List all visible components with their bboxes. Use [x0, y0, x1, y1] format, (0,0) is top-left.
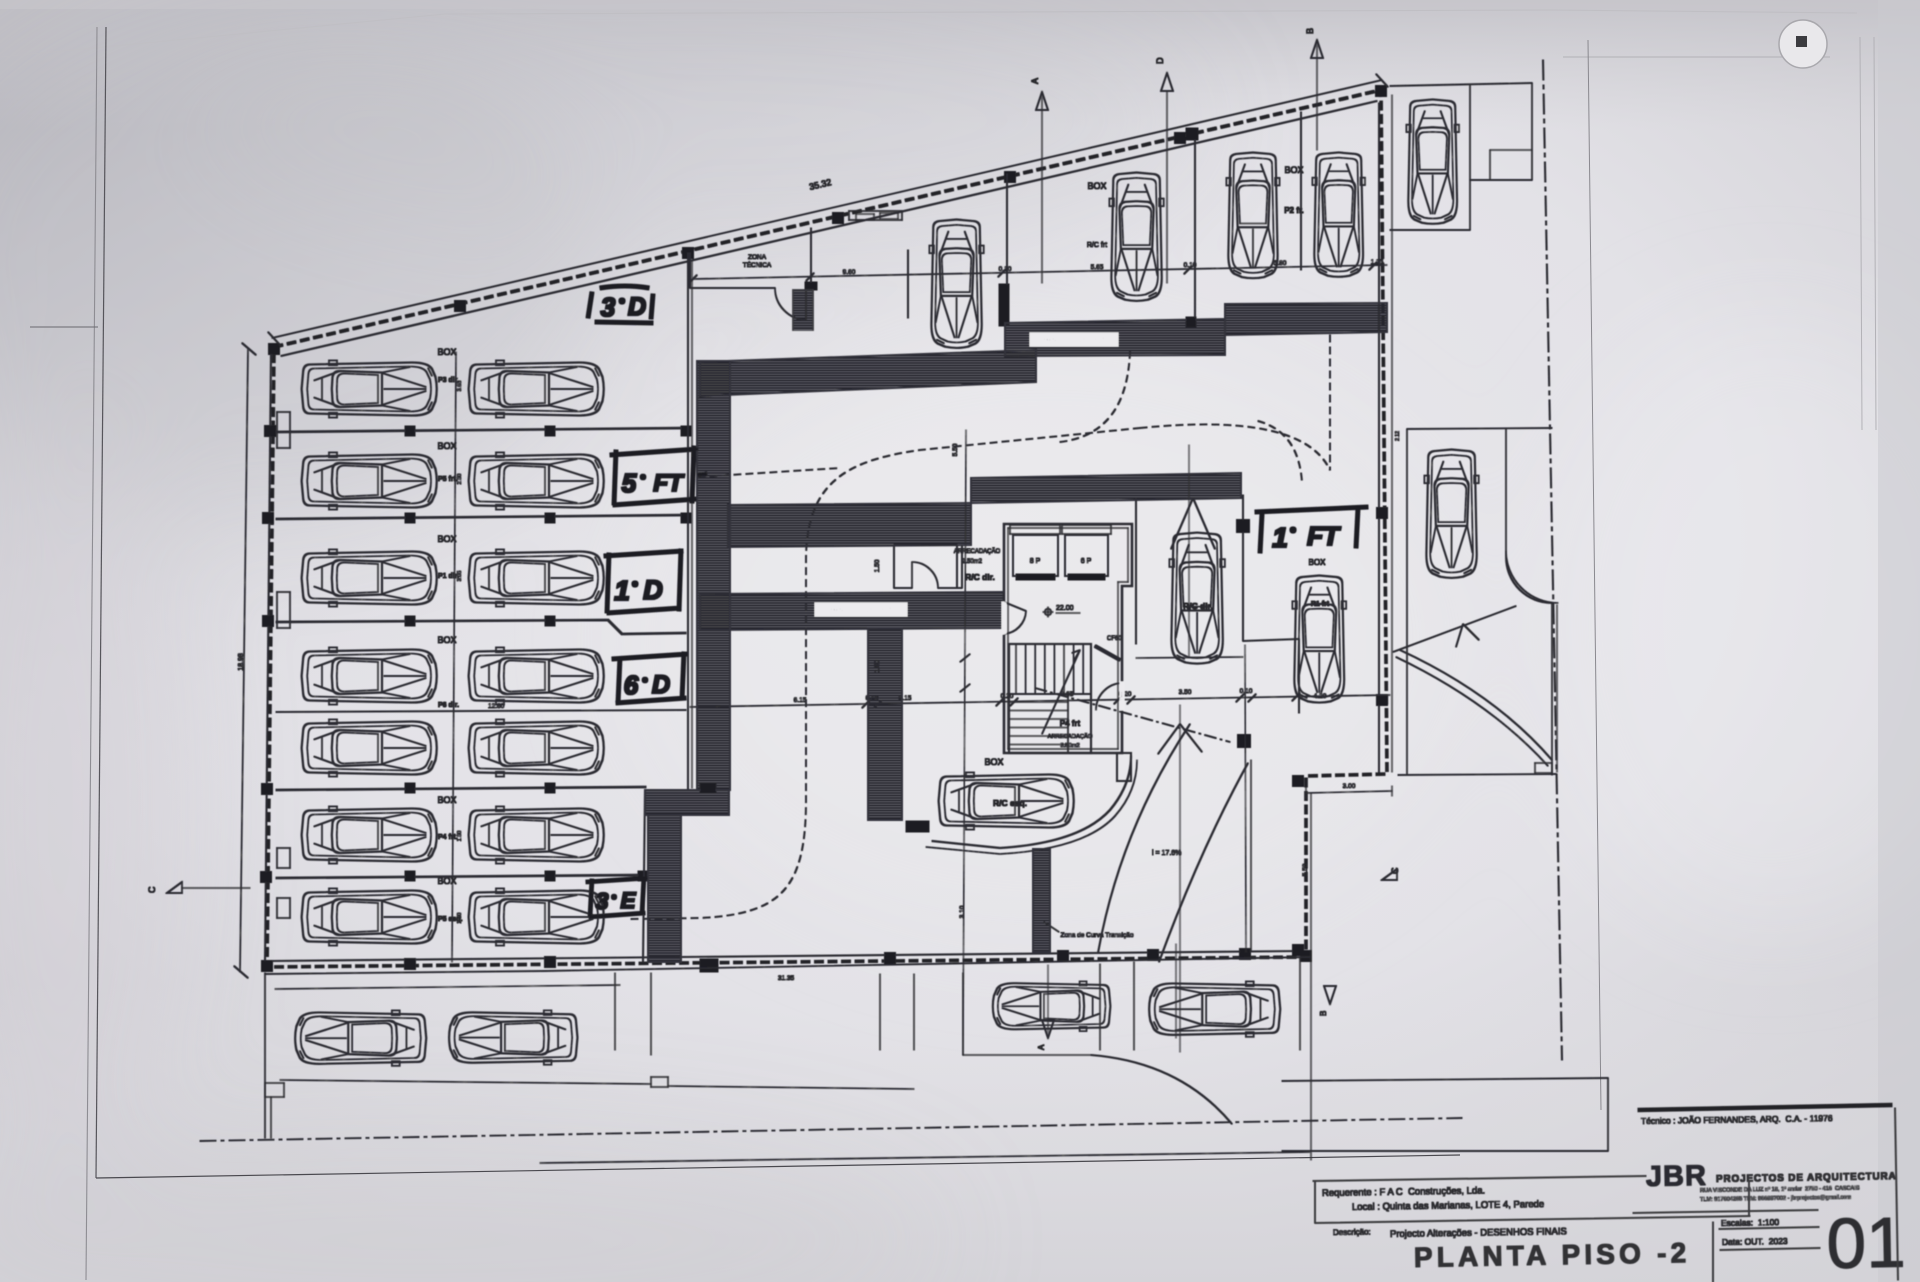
svg-text:2.50: 2.50 [457, 474, 463, 485]
svg-text:P6 dir.: P6 dir. [438, 702, 459, 709]
svg-text:P5 frt.: P5 frt. [438, 476, 458, 483]
svg-text:P1 dir.: P1 dir. [438, 573, 459, 580]
svg-text:BOX: BOX [984, 757, 1003, 767]
svg-text:Descrição:: Descrição: [1333, 1227, 1371, 1237]
svg-text:Data: OUT. 2023: Data: OUT. 2023 [1722, 1236, 1788, 1247]
svg-text:0.10: 0.10 [1240, 688, 1253, 695]
svg-text:2.50: 2.50 [457, 913, 463, 924]
svg-text:BOX: BOX [1284, 165, 1303, 175]
svg-text:BOX: BOX [437, 795, 456, 805]
svg-text:4.20: 4.20 [1314, 693, 1327, 700]
svg-text:1.50: 1.50 [874, 559, 881, 572]
svg-text:R/C dir.: R/C dir. [965, 572, 995, 582]
svg-text:BOX: BOX [437, 876, 456, 886]
svg-text:ARRECADAÇÃO: ARRECADAÇÃO [1048, 733, 1093, 740]
svg-text:01: 01 [1826, 1204, 1906, 1282]
svg-text:P4 frt: P4 frt [1060, 719, 1081, 728]
svg-text:JBR: JBR [1646, 1160, 1708, 1193]
svg-text:BOX: BOX [1309, 558, 1327, 567]
svg-text:C: C [147, 886, 157, 893]
svg-text:B: B [1319, 1011, 1328, 1016]
svg-text:3: 3 [601, 292, 616, 322]
svg-text:9.60: 9.60 [843, 269, 856, 276]
svg-text:Zona de Curva Transição: Zona de Curva Transição [1061, 932, 1134, 939]
svg-text:BOX: BOX [437, 534, 456, 544]
svg-text:P4 frt.: P4 frt. [438, 834, 458, 841]
svg-text:R/C esq.: R/C esq. [993, 798, 1027, 808]
svg-text:BOX: BOX [437, 635, 456, 645]
svg-text:R1 frt: R1 frt [1311, 601, 1330, 608]
svg-text:1.50: 1.50 [457, 831, 463, 842]
svg-text:3.15: 3.15 [899, 695, 912, 702]
svg-text:PLANTA PISO -2: PLANTA PISO -2 [1414, 1237, 1691, 1273]
svg-text:5: 5 [622, 468, 637, 498]
svg-text:BOX: BOX [437, 347, 456, 357]
svg-text:6 P: 6 P [1081, 558, 1092, 565]
svg-text:D: D [628, 293, 646, 321]
svg-text:3.50m2: 3.50m2 [1060, 743, 1079, 749]
svg-text:6.15: 6.15 [794, 697, 807, 704]
svg-text:8 P: 8 P [1030, 558, 1041, 565]
svg-text:D: D [643, 575, 663, 605]
svg-text:TÉCNICA: TÉCNICA [743, 260, 772, 269]
svg-text:Escalas: 1:100: Escalas: 1:100 [1721, 1217, 1780, 1228]
svg-text:22.00: 22.00 [1056, 605, 1074, 612]
svg-text:BOX: BOX [437, 441, 456, 451]
svg-text:3.50: 3.50 [1179, 689, 1192, 696]
svg-text:3.05: 3.05 [457, 571, 463, 582]
svg-text:FT: FT [1307, 521, 1341, 551]
svg-text:3.10: 3.10 [959, 905, 966, 918]
svg-text:A: A [1030, 78, 1040, 84]
svg-text:0.10: 0.10 [866, 695, 879, 702]
svg-text:5.50: 5.50 [952, 443, 959, 456]
svg-text:i = 17.6%: i = 17.6% [1152, 850, 1181, 857]
svg-text:3.65: 3.65 [457, 381, 463, 392]
svg-text:3.00: 3.00 [1343, 783, 1356, 790]
svg-text:5.50: 5.50 [1302, 863, 1309, 876]
svg-text:P3 dir.: P3 dir. [438, 377, 459, 384]
svg-text:ZONA: ZONA [748, 254, 767, 261]
svg-text:0.10: 0.10 [999, 266, 1012, 273]
svg-text:R/C frt: R/C frt [1087, 242, 1107, 249]
svg-text:2.12: 2.12 [1395, 431, 1401, 441]
svg-text:0.20: 0.20 [1001, 693, 1014, 700]
svg-text:E: E [621, 888, 637, 913]
svg-text:5.80: 5.80 [1274, 260, 1287, 267]
svg-text:1.25: 1.25 [1371, 259, 1384, 266]
svg-text:1: 1 [1272, 522, 1288, 553]
svg-text:0.20: 0.20 [1119, 691, 1132, 698]
svg-text:P2 fr.: P2 fr. [1284, 206, 1304, 215]
svg-text:CAMINHO DE EVACUAÇÃO: CAMINHO DE EVACUAÇÃO [826, 607, 898, 614]
svg-text:1: 1 [614, 575, 630, 606]
svg-text:3: 3 [596, 888, 609, 914]
svg-text:5.65: 5.65 [1091, 264, 1104, 271]
svg-text:CAMINHO DE EVACUAÇÃO: CAMINHO DE EVACUAÇÃO [1039, 337, 1111, 344]
svg-text:D: D [1155, 57, 1165, 64]
svg-text:6: 6 [624, 670, 639, 700]
svg-text:FT: FT [653, 470, 685, 497]
svg-text:CF60: CF60 [1107, 636, 1122, 642]
svg-text:1.50: 1.50 [874, 659, 881, 672]
svg-text:ARRECADAÇÃO: ARRECADAÇÃO [954, 548, 1001, 555]
svg-text:31.35: 31.35 [778, 975, 795, 982]
svg-text:R/C dir.: R/C dir. [1183, 601, 1213, 611]
svg-text:A: A [1037, 1044, 1046, 1050]
svg-text:BOX: BOX [1087, 181, 1106, 191]
svg-text:12.60: 12.60 [488, 703, 505, 710]
svg-text:B: B [1305, 28, 1315, 34]
svg-text:18.98: 18.98 [238, 653, 245, 671]
svg-text:D: D [652, 671, 670, 699]
